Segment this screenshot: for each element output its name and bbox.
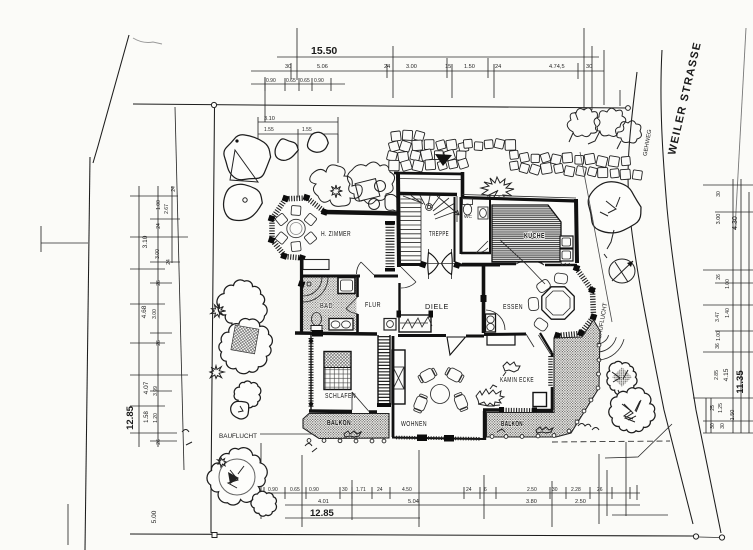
svg-text:1.40: 1.40 [725,308,731,318]
svg-text:24: 24 [384,64,390,70]
svg-text:4.01: 4.01 [318,499,329,505]
svg-text:36: 36 [715,343,721,349]
svg-text:FLUR: FLUR [365,302,381,309]
svg-text:4.15: 4.15 [723,368,730,381]
svg-text:3.10: 3.10 [264,116,275,122]
svg-text:26: 26 [156,439,162,445]
svg-text:4.68: 4.68 [141,305,148,318]
svg-text:3.10: 3.10 [142,235,149,248]
svg-text:3.00: 3.00 [155,249,161,259]
svg-text:1.00: 1.00 [156,200,162,210]
svg-text:2.50: 2.50 [527,487,537,493]
svg-text:30: 30 [285,64,291,70]
svg-text:30: 30 [342,487,348,493]
svg-text:3.00: 3.00 [716,214,722,225]
svg-text:H. ZIMMER: H. ZIMMER [321,231,351,238]
svg-text:3.00: 3.00 [152,309,158,319]
svg-text:2.85: 2.85 [714,370,720,380]
svg-text:1.58: 1.58 [144,411,150,423]
svg-text:11.35: 11.35 [735,370,746,394]
svg-text:24: 24 [377,487,383,493]
svg-text:4.30: 4.30 [732,216,739,230]
svg-text:24: 24 [171,186,177,192]
svg-text:12.85: 12.85 [125,405,136,429]
svg-text:BAD: BAD [320,303,333,310]
svg-text:0.65: 0.65 [300,78,310,84]
svg-text:15: 15 [445,64,451,70]
svg-text:3.80: 3.80 [526,499,537,505]
svg-text:3.00: 3.00 [406,64,417,70]
svg-text:30: 30 [552,487,558,493]
svg-text:SCHLAFEN: SCHLAFEN [325,393,356,400]
svg-text:BALKON: BALKON [327,420,351,427]
svg-text:0.65: 0.65 [290,487,300,493]
svg-text:24: 24 [166,259,172,265]
svg-text:1.00: 1.00 [725,279,731,289]
svg-text:0.90: 0.90 [309,487,319,493]
svg-text:26: 26 [156,280,162,286]
svg-text:1.20: 1.20 [153,413,159,423]
svg-text:12.85: 12.85 [310,508,334,519]
svg-text:0.90: 0.90 [268,487,278,493]
svg-text:KÜCHE: KÜCHE [524,231,545,240]
svg-text:5.04: 5.04 [408,499,419,505]
svg-text:TREPPE: TREPPE [429,231,449,238]
svg-text:30: 30 [586,64,592,70]
svg-text:1.00: 1.00 [716,331,722,341]
svg-text:2.67: 2.67 [164,204,170,214]
svg-text:30: 30 [716,191,722,197]
svg-text:KAMIN ECKE: KAMIN ECKE [500,377,534,384]
svg-text:1.50: 1.50 [730,410,736,421]
svg-text:26: 26 [716,274,722,280]
svg-text:1.71: 1.71 [356,487,366,493]
svg-text:WOHNEN: WOHNEN [401,421,427,428]
svg-text:1.50: 1.50 [464,64,475,70]
svg-text:5.06: 5.06 [317,64,328,70]
svg-text:2.50: 2.50 [575,499,586,505]
svg-text:1.25: 1.25 [718,403,724,413]
svg-text:3.47: 3.47 [715,312,721,322]
svg-text:25: 25 [710,405,716,411]
svg-text:26: 26 [156,340,162,346]
svg-text:24: 24 [156,223,162,229]
svg-text:30: 30 [720,423,726,429]
svg-text:BAUFLUCHT: BAUFLUCHT [219,433,257,440]
svg-text:WC: WC [464,214,473,220]
svg-text:30: 30 [710,423,716,429]
svg-text:15.50: 15.50 [311,45,337,57]
svg-text:24: 24 [495,64,501,70]
svg-text:5.00: 5.00 [151,510,158,523]
svg-text:1.55: 1.55 [264,127,274,133]
svg-text:0.65: 0.65 [286,78,296,84]
svg-text:2.28: 2.28 [571,487,581,493]
svg-text:4.50: 4.50 [402,487,412,493]
svg-text:BALKON: BALKON [501,421,523,428]
svg-text:0.90: 0.90 [314,78,324,84]
svg-text:ESSEN: ESSEN [503,304,523,311]
svg-text:0.90: 0.90 [266,78,276,84]
svg-text:1.55: 1.55 [302,127,312,133]
svg-text:26: 26 [597,487,603,493]
svg-text:6: 6 [484,487,487,493]
svg-text:4.74,5: 4.74,5 [549,64,565,70]
svg-text:3.99: 3.99 [153,386,159,396]
svg-text:4.07: 4.07 [143,381,150,394]
svg-text:24: 24 [466,487,472,493]
svg-text:DIELE: DIELE [425,304,449,311]
